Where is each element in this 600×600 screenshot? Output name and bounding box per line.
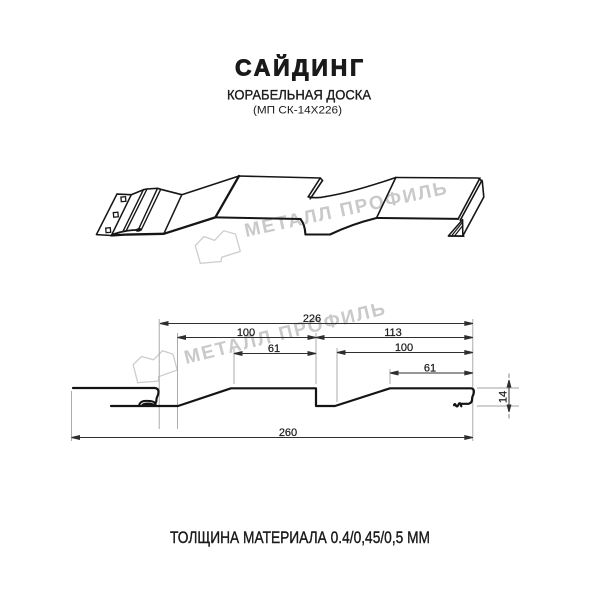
svg-text:61: 61 [424, 363, 436, 375]
svg-text:226: 226 [303, 313, 321, 325]
svg-text:61: 61 [268, 343, 280, 355]
svg-text:100: 100 [237, 327, 255, 339]
svg-text:100: 100 [395, 342, 413, 354]
svg-text:(МП СК-14Х226): (МП СК-14Х226) [253, 105, 342, 117]
svg-text:ТОЛЩИНА МАТЕРИАЛА 0.4/0,45/0,5: ТОЛЩИНА МАТЕРИАЛА 0.4/0,45/0,5 ММ [170, 528, 430, 547]
svg-text:КОРАБЕЛЬНАЯ ДОСКА: КОРАБЕЛЬНАЯ ДОСКА [227, 87, 372, 103]
svg-text:14: 14 [498, 391, 510, 403]
svg-text:113: 113 [384, 327, 402, 339]
svg-text:260: 260 [279, 427, 297, 439]
svg-text:САЙДИНГ: САЙДИНГ [235, 54, 364, 81]
